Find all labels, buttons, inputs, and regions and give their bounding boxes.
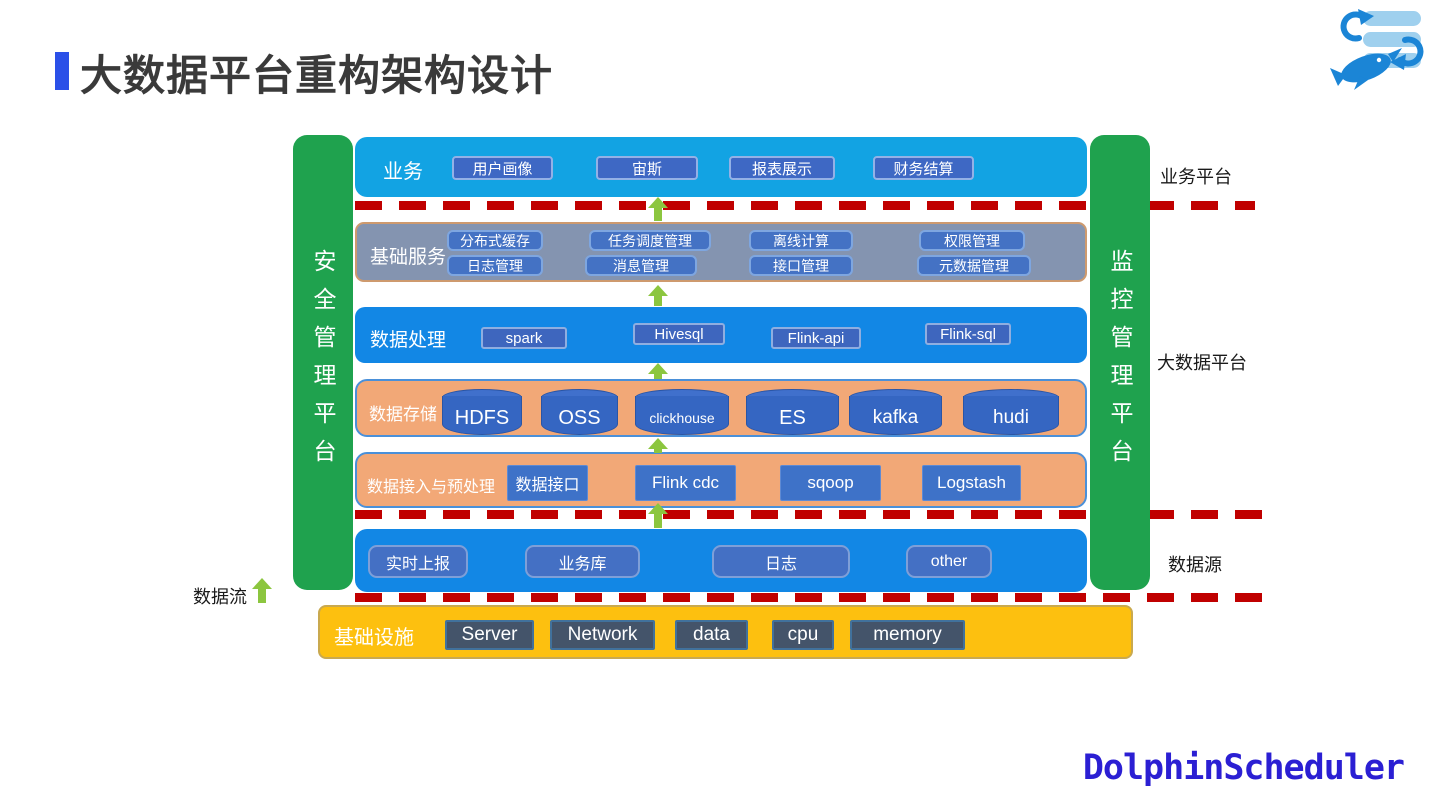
chip-server: Server — [445, 620, 534, 650]
chip-user-profile: 用户画像 — [452, 156, 553, 180]
cylinder-oss: OSS — [541, 389, 618, 435]
chip-flink-cdc: Flink cdc — [635, 465, 736, 501]
chip-sqoop: sqoop — [780, 465, 881, 501]
pillar-security-label: 安全管理平台 — [306, 249, 340, 477]
cylinder-hudi: hudi — [963, 389, 1059, 435]
annotation-data-flow: 数据流 — [193, 583, 247, 609]
layer-infra-label: 基础设施 — [334, 621, 414, 650]
layer-data-ingestion: 数据接入与预处理 数据接口 Flink cdc sqoop Logstash — [355, 452, 1087, 508]
layer-services-label: 基础服务 — [370, 242, 446, 269]
cylinder-kafka: kafka — [849, 389, 942, 435]
layer-data-processing: 数据处理 spark Hivesql Flink-api Flink-sql — [355, 307, 1087, 363]
up-arrow-icon — [648, 285, 668, 306]
title-accent-bar — [55, 52, 69, 90]
chip-metadata-mgmt: 元数据管理 — [917, 255, 1031, 276]
chip-interface-mgmt: 接口管理 — [749, 255, 853, 276]
dolphinscheduler-logo — [1330, 6, 1432, 92]
chip-offline-compute: 离线计算 — [749, 230, 853, 251]
chip-network: Network — [550, 620, 655, 650]
chip-flink-sql: Flink-sql — [925, 323, 1011, 345]
chip-other: other — [906, 545, 992, 578]
cylinder-clickhouse-label: clickhouse — [635, 401, 729, 435]
layer-ingestion-label: 数据接入与预处理 — [367, 473, 495, 497]
layer-business-label: 业务 — [383, 155, 423, 184]
up-arrow-icon — [648, 197, 668, 221]
cylinder-clickhouse: clickhouse — [635, 389, 729, 435]
chip-message-mgmt: 消息管理 — [585, 255, 697, 276]
layer-basic-services: 基础服务 分布式缓存 任务调度管理 离线计算 权限管理 日志管理 消息管理 接口… — [355, 222, 1087, 282]
data-flow-arrow-icon — [252, 578, 272, 603]
pillar-monitoring-platform: 监控管理平台 — [1090, 135, 1150, 590]
dashed-separator-datasource — [355, 593, 1275, 602]
page-title: 大数据平台重构架构设计 — [80, 42, 553, 103]
up-arrow-icon — [648, 438, 668, 453]
pillar-security-platform: 安全管理平台 — [293, 135, 353, 590]
cylinder-hudi-label: hudi — [963, 401, 1059, 435]
chip-memory: memory — [850, 620, 965, 650]
layer-storage-label: 数据存储 — [369, 400, 437, 425]
chip-cpu: cpu — [772, 620, 834, 650]
cylinder-kafka-label: kafka — [849, 401, 942, 435]
cylinder-oss-label: OSS — [541, 401, 618, 435]
layer-infrastructure: 基础设施 Server Network data cpu memory — [318, 605, 1133, 659]
layer-processing-label: 数据处理 — [370, 325, 446, 352]
chip-data: data — [675, 620, 748, 650]
chip-zeus: 宙斯 — [596, 156, 698, 180]
chip-report-display: 报表展示 — [729, 156, 835, 180]
annotation-bigdata-platform: 大数据平台 — [1157, 349, 1247, 375]
chip-task-scheduling: 任务调度管理 — [589, 230, 711, 251]
up-arrow-icon — [648, 503, 668, 528]
chip-log-mgmt: 日志管理 — [447, 255, 543, 276]
annotation-business-platform: 业务平台 — [1160, 163, 1232, 189]
chip-hivesql: Hivesql — [633, 323, 725, 345]
cylinder-es: ES — [746, 389, 839, 435]
layer-data-storage: 数据存储 HDFS OSS clickhouse ES kafka hudi — [355, 379, 1087, 437]
pillar-monitoring-label: 监控管理平台 — [1103, 249, 1137, 477]
chip-flink-api: Flink-api — [771, 327, 861, 349]
cylinder-hdfs-label: HDFS — [442, 401, 522, 435]
chip-data-interface: 数据接口 — [507, 465, 588, 501]
up-arrow-icon — [648, 363, 668, 379]
brand-wordmark: DolphinScheduler — [1083, 748, 1404, 788]
cylinder-hdfs: HDFS — [442, 389, 522, 435]
layer-data-sources: 实时上报 业务库 日志 other — [355, 529, 1087, 592]
chip-permission-mgmt: 权限管理 — [919, 230, 1025, 251]
chip-business-db: 业务库 — [525, 545, 640, 578]
dolphinscheduler-logo-icon — [1330, 6, 1432, 92]
chip-distributed-cache: 分布式缓存 — [447, 230, 543, 251]
chip-logstash: Logstash — [922, 465, 1021, 501]
chip-realtime-report: 实时上报 — [368, 545, 468, 578]
layer-business: 业务 用户画像 宙斯 报表展示 财务结算 — [355, 137, 1087, 197]
annotation-data-source: 数据源 — [1168, 551, 1222, 577]
cylinder-es-label: ES — [746, 401, 839, 435]
chip-finance-settle: 财务结算 — [873, 156, 974, 180]
chip-spark: spark — [481, 327, 567, 349]
chip-logs: 日志 — [712, 545, 850, 578]
